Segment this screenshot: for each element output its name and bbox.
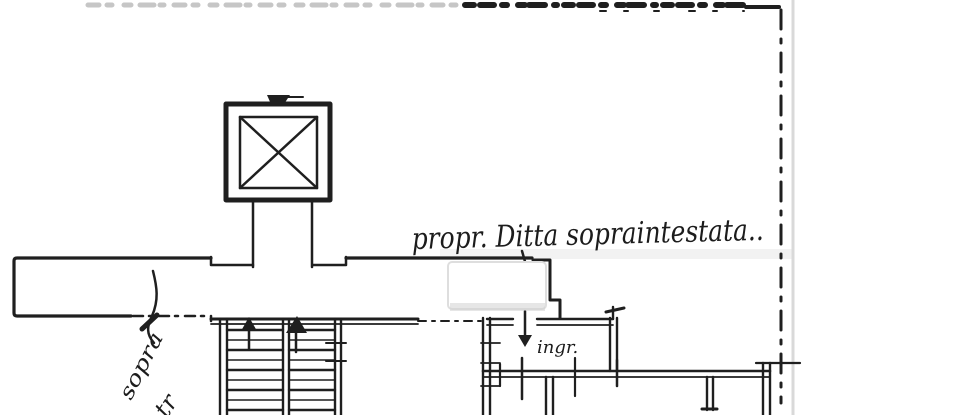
floor-plan-drawing: propr. Ditta sopraintestata.. ingr. sopr… (0, 0, 960, 415)
elevator-landing-notch-right (313, 257, 346, 265)
entrance-label: ingr. (537, 337, 578, 358)
boundary-lines (781, 0, 793, 415)
side-note-partial-text: tr (149, 388, 185, 415)
staircase (211, 316, 482, 415)
stair-treads (227, 330, 335, 410)
cutoff-text-strip (88, 5, 779, 11)
redaction-box (448, 262, 546, 311)
scanned-floor-plan: propr. Ditta sopraintestata.. ingr. sopr… (0, 0, 960, 415)
elevator-landing-notch-left (211, 257, 253, 265)
elevator-shaft-symbol (226, 95, 330, 267)
entrance-arrow-icon (518, 335, 532, 347)
